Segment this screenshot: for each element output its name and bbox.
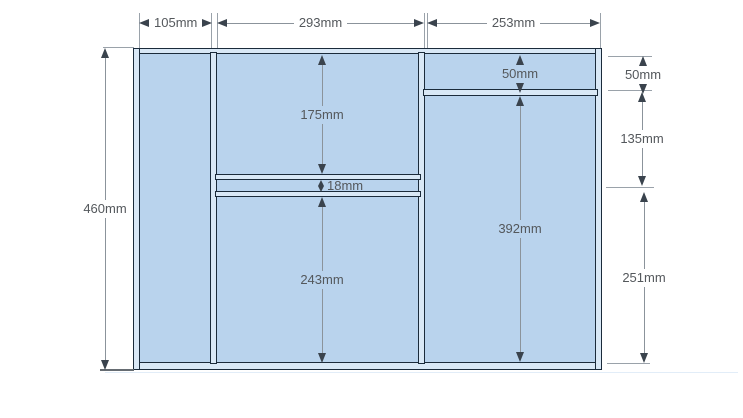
dimension-label: 392mm (498, 222, 541, 236)
dimension-line (322, 289, 323, 353)
dimension-label: 253mm (492, 16, 535, 30)
dim-top-width-3: 253mm (427, 15, 600, 31)
dim-right-column-top-section: 50mm (498, 55, 542, 88)
arrowhead-right-icon (590, 19, 600, 27)
bottom-wall (133, 362, 602, 370)
dim-shelf-gap: 18mm (318, 179, 363, 192)
dimension-label: 460mm (83, 202, 126, 216)
top-wall (133, 48, 602, 54)
arrowhead-down-icon (318, 164, 326, 174)
dimension-line (105, 58, 106, 200)
dimension-line (322, 124, 323, 165)
extension-line (606, 187, 654, 188)
panel-drawing-page: { "dims": { "top": [ {"label": "105mm"},… (0, 0, 743, 418)
dim-middle-lower-section: 243mm (300, 197, 344, 363)
dim-right-bottom: 251mm (622, 192, 666, 363)
dimension-label: 243mm (300, 273, 343, 287)
arrowhead-down-icon (516, 83, 524, 93)
dimension-line (520, 238, 521, 352)
dimension-line (322, 207, 323, 271)
dimension-label: 251mm (622, 271, 665, 285)
dimension-label: 50mm (625, 68, 661, 82)
arrowhead-up-icon (101, 48, 109, 58)
panel-drawing-canvas: 105mm 293mm 253mm 460mm 50mm 1 (0, 0, 743, 418)
arrowhead-up-icon (638, 92, 646, 102)
double-arrow-icon (318, 180, 324, 192)
dimension-line (642, 102, 643, 130)
arrowhead-right-icon (202, 19, 212, 27)
dimension-label: 105mm (154, 16, 197, 30)
extension-line (600, 13, 601, 48)
dim-right-top: 50mm (621, 56, 665, 89)
arrowhead-down-icon (318, 353, 326, 363)
dimension-label: 293mm (299, 16, 342, 30)
dimension-line (520, 106, 521, 220)
dim-right-column-main-section: 392mm (498, 96, 542, 362)
arrowhead-left-icon (217, 19, 227, 27)
base-shadow-line (105, 372, 738, 373)
left-wall (133, 48, 140, 370)
arrowhead-up-icon (516, 55, 524, 65)
dimension-label: 175mm (300, 108, 343, 122)
dim-top-width-1: 105mm (139, 15, 211, 31)
vertical-divider-1 (210, 52, 217, 364)
extension-line (424, 13, 425, 48)
dim-right-middle: 135mm (620, 92, 664, 186)
arrowhead-left-icon (427, 19, 437, 27)
dimension-line (644, 202, 645, 269)
arrowhead-down-icon (638, 176, 646, 186)
right-wall (595, 48, 602, 370)
arrowhead-right-icon (414, 19, 424, 27)
dimension-line (105, 218, 106, 360)
dimension-line (540, 23, 590, 24)
arrowhead-down-icon (101, 360, 109, 370)
dim-middle-upper-section: 175mm (300, 55, 344, 174)
arrowhead-down-icon (640, 353, 648, 363)
arrowhead-left-icon (139, 19, 149, 27)
dimension-line (642, 148, 643, 176)
dimension-label: 50mm (502, 67, 538, 81)
dim-left-height: 460mm (83, 48, 127, 370)
dimension-line (322, 65, 323, 106)
vertical-divider-2 (418, 52, 425, 364)
arrowhead-up-icon (640, 192, 648, 202)
right-column-divider (423, 89, 598, 96)
arrowhead-up-icon (639, 56, 647, 66)
dimension-label: 18mm (327, 179, 363, 193)
arrowhead-down-icon (516, 352, 524, 362)
dimension-line (644, 287, 645, 354)
dimension-line (347, 23, 414, 24)
dimension-label: 135mm (620, 132, 663, 146)
dimension-line (227, 23, 294, 24)
arrowhead-up-icon (516, 96, 524, 106)
arrowhead-up-icon (318, 197, 326, 207)
extension-line (607, 363, 650, 364)
arrowhead-up-icon (318, 55, 326, 65)
dimension-line (437, 23, 487, 24)
dim-top-width-2: 293mm (217, 15, 424, 31)
